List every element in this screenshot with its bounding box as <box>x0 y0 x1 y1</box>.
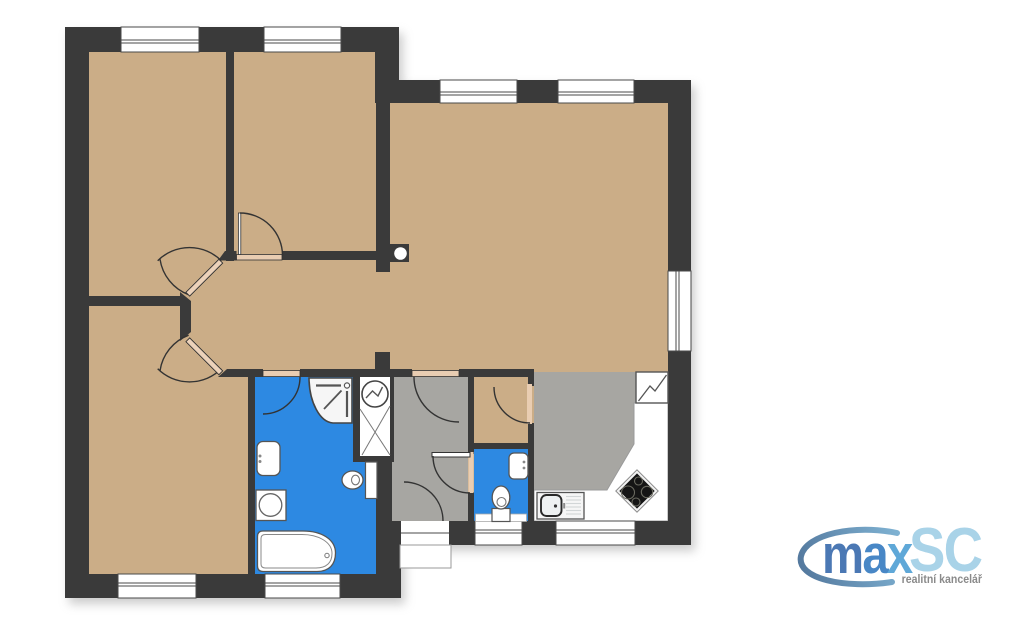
svg-text:realitní kancelář: realitní kancelář <box>902 573 983 586</box>
svg-text:max: max <box>822 524 914 585</box>
